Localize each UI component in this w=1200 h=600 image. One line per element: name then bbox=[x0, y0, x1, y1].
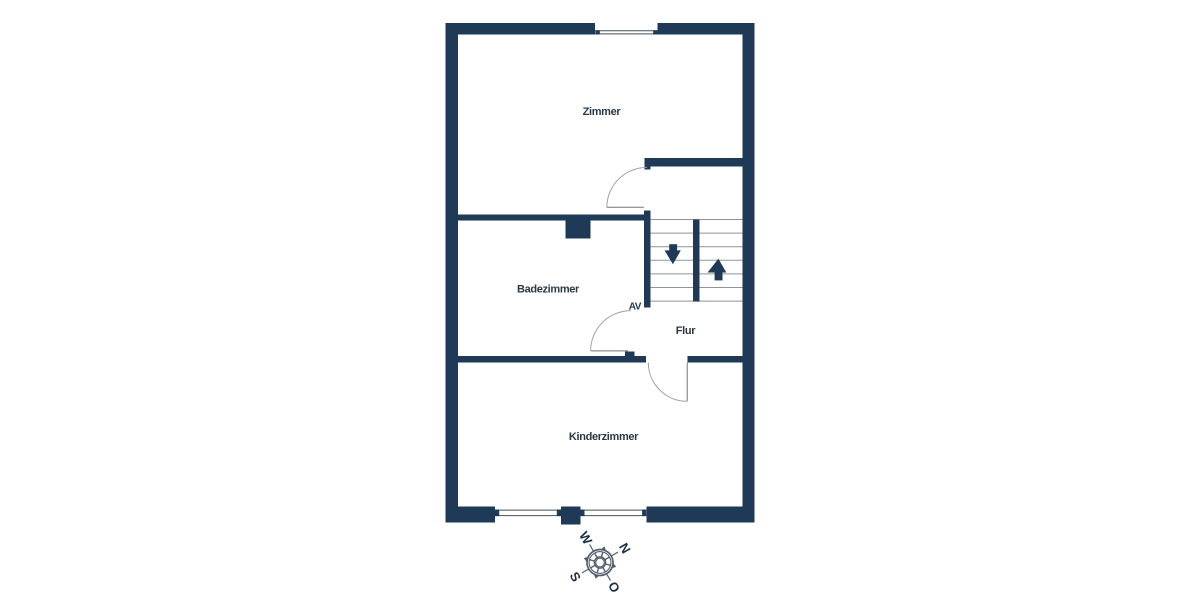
svg-text:Badezimmer: Badezimmer bbox=[517, 284, 580, 296]
svg-text:AV: AV bbox=[629, 302, 642, 313]
svg-text:Kinderzimmer: Kinderzimmer bbox=[569, 431, 639, 443]
svg-text:O: O bbox=[605, 579, 623, 595]
svg-text:S: S bbox=[567, 569, 584, 584]
svg-text:N: N bbox=[616, 540, 634, 556]
svg-text:Flur: Flur bbox=[676, 325, 696, 337]
svg-text:W: W bbox=[576, 529, 595, 548]
svg-text:Zimmer: Zimmer bbox=[583, 106, 622, 118]
